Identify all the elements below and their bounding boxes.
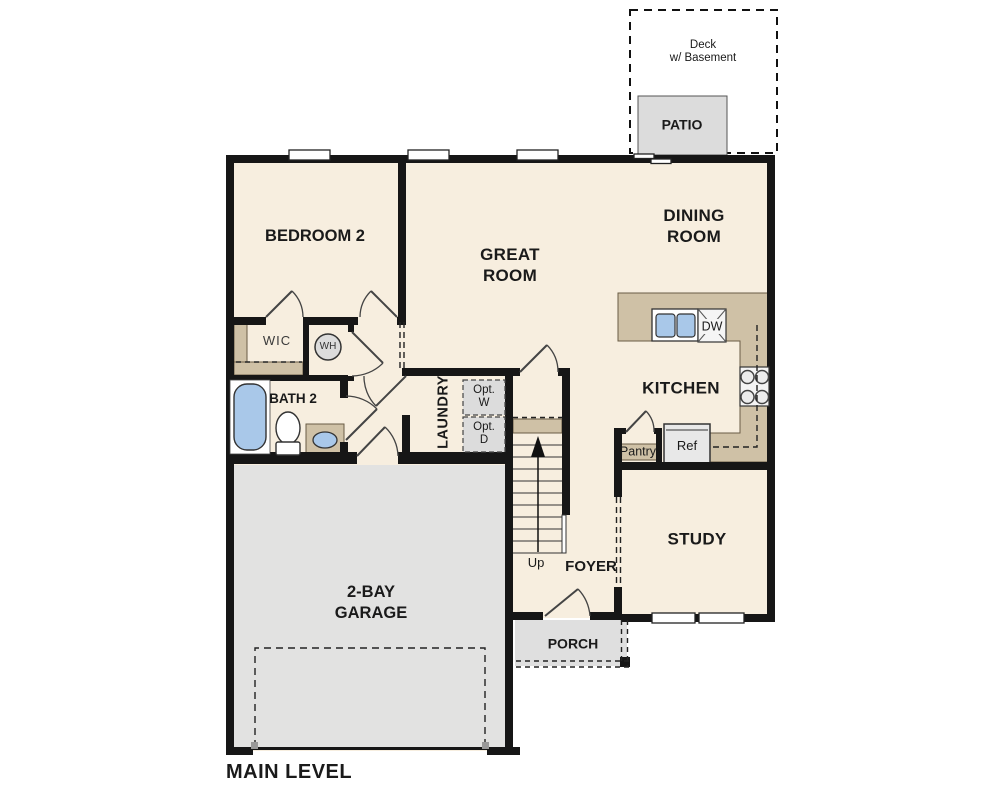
greatroom-window-2 [517, 150, 558, 160]
room-label-study: STUDY [667, 529, 726, 550]
room-label-bath2: BATH 2 [269, 391, 317, 407]
sliding-door [634, 154, 654, 159]
plan-title: MAIN LEVEL [226, 761, 352, 784]
bedroom-window [289, 150, 330, 160]
room-label-foyer: FOYER [565, 558, 617, 576]
toilet [276, 412, 300, 455]
greatroom-window-1 [408, 150, 449, 160]
vanity-sink [313, 432, 337, 448]
deck-label: Deckw/ Basement [670, 39, 736, 65]
water-heater-label: WH [320, 341, 337, 353]
study-window-2 [699, 613, 744, 623]
stair-railing [562, 515, 566, 553]
porch-label: PORCH [548, 636, 599, 653]
wic-shelf-left [234, 320, 247, 362]
room-label-kitchen: KITCHEN [642, 378, 720, 399]
patio-label: PATIO [662, 117, 703, 134]
study-window-1 [652, 613, 695, 623]
floorplan-graphics [0, 0, 1000, 800]
room-label-wic: WIC [263, 333, 291, 349]
opt-dryer-label: Opt.D [473, 421, 495, 447]
room-label-bedroom2: BEDROOM 2 [265, 227, 365, 247]
stairs-up-label: Up [528, 555, 545, 571]
room-label-garage: 2-BAYGARAGE [335, 582, 407, 624]
stair-landing [513, 419, 562, 433]
refrigerator-label: Ref [677, 438, 697, 454]
room-label-dining-room: DININGROOM [663, 205, 724, 247]
dishwasher-label: DW [702, 320, 723, 335]
bathtub [230, 380, 270, 454]
floorplan-canvas: Deckw/ Basement PATIO BEDROOM 2 GREATROO… [0, 0, 1000, 800]
opt-washer-label: Opt.W [473, 384, 495, 410]
wic-shelf-bottom [234, 362, 303, 375]
room-label-great-room: GREATROOM [480, 244, 540, 286]
sliding-door [651, 159, 671, 164]
room-label-laundry: LAUNDRY [435, 375, 452, 449]
stove [740, 367, 769, 406]
pantry-label: Pantry [620, 445, 656, 460]
